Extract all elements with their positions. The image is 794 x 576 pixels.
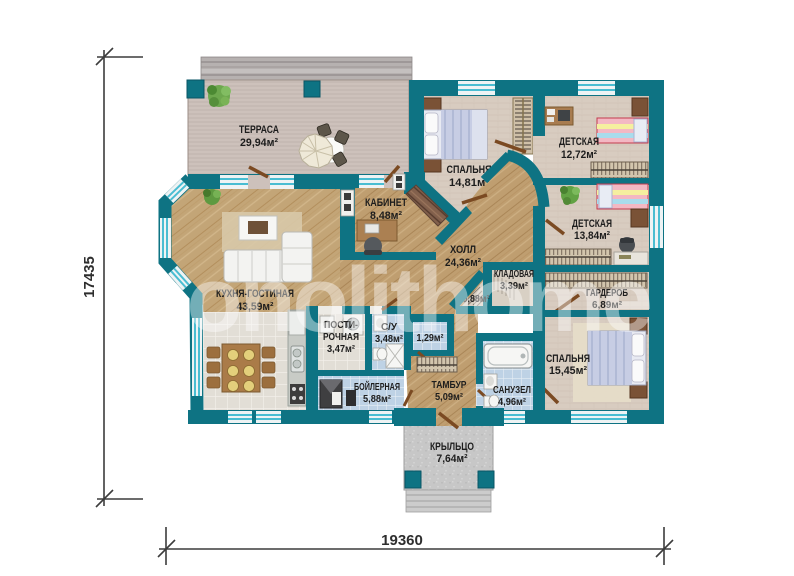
svg-text:17435: 17435	[81, 256, 98, 298]
svg-text:КАБИНЕТ: КАБИНЕТ	[365, 197, 407, 209]
svg-text:ДЕТСКАЯ: ДЕТСКАЯ	[572, 218, 612, 230]
svg-text:29,94м²: 29,94м²	[240, 137, 278, 149]
svg-text:САНУЗЕЛ: САНУЗЕЛ	[493, 385, 531, 396]
svg-text:15,45м²: 15,45м²	[549, 365, 587, 377]
svg-text:4,96м²: 4,96м²	[498, 397, 527, 408]
svg-text:ДЕТСКАЯ: ДЕТСКАЯ	[559, 136, 599, 148]
svg-text:КРЫЛЬЦО: КРЫЛЬЦО	[430, 441, 474, 453]
svg-text:8,48м²: 8,48м²	[370, 210, 402, 222]
svg-text:monolithome: monolithome	[108, 249, 653, 351]
svg-text:19360: 19360	[381, 532, 423, 549]
svg-text:12,72м²: 12,72м²	[561, 149, 597, 161]
svg-text:7,64м²: 7,64м²	[437, 453, 468, 465]
svg-text:СПАЛЬНЯ: СПАЛЬНЯ	[546, 353, 590, 365]
svg-text:5,09м²: 5,09м²	[435, 392, 464, 403]
svg-text:БОЙЛЕРНАЯ: БОЙЛЕРНАЯ	[354, 380, 400, 393]
svg-text:5,88м²: 5,88м²	[363, 394, 392, 405]
svg-text:13,84м²: 13,84м²	[574, 230, 610, 242]
svg-text:ТЕРРАСА: ТЕРРАСА	[239, 124, 279, 136]
svg-text:ТАМБУР: ТАМБУР	[432, 380, 467, 391]
